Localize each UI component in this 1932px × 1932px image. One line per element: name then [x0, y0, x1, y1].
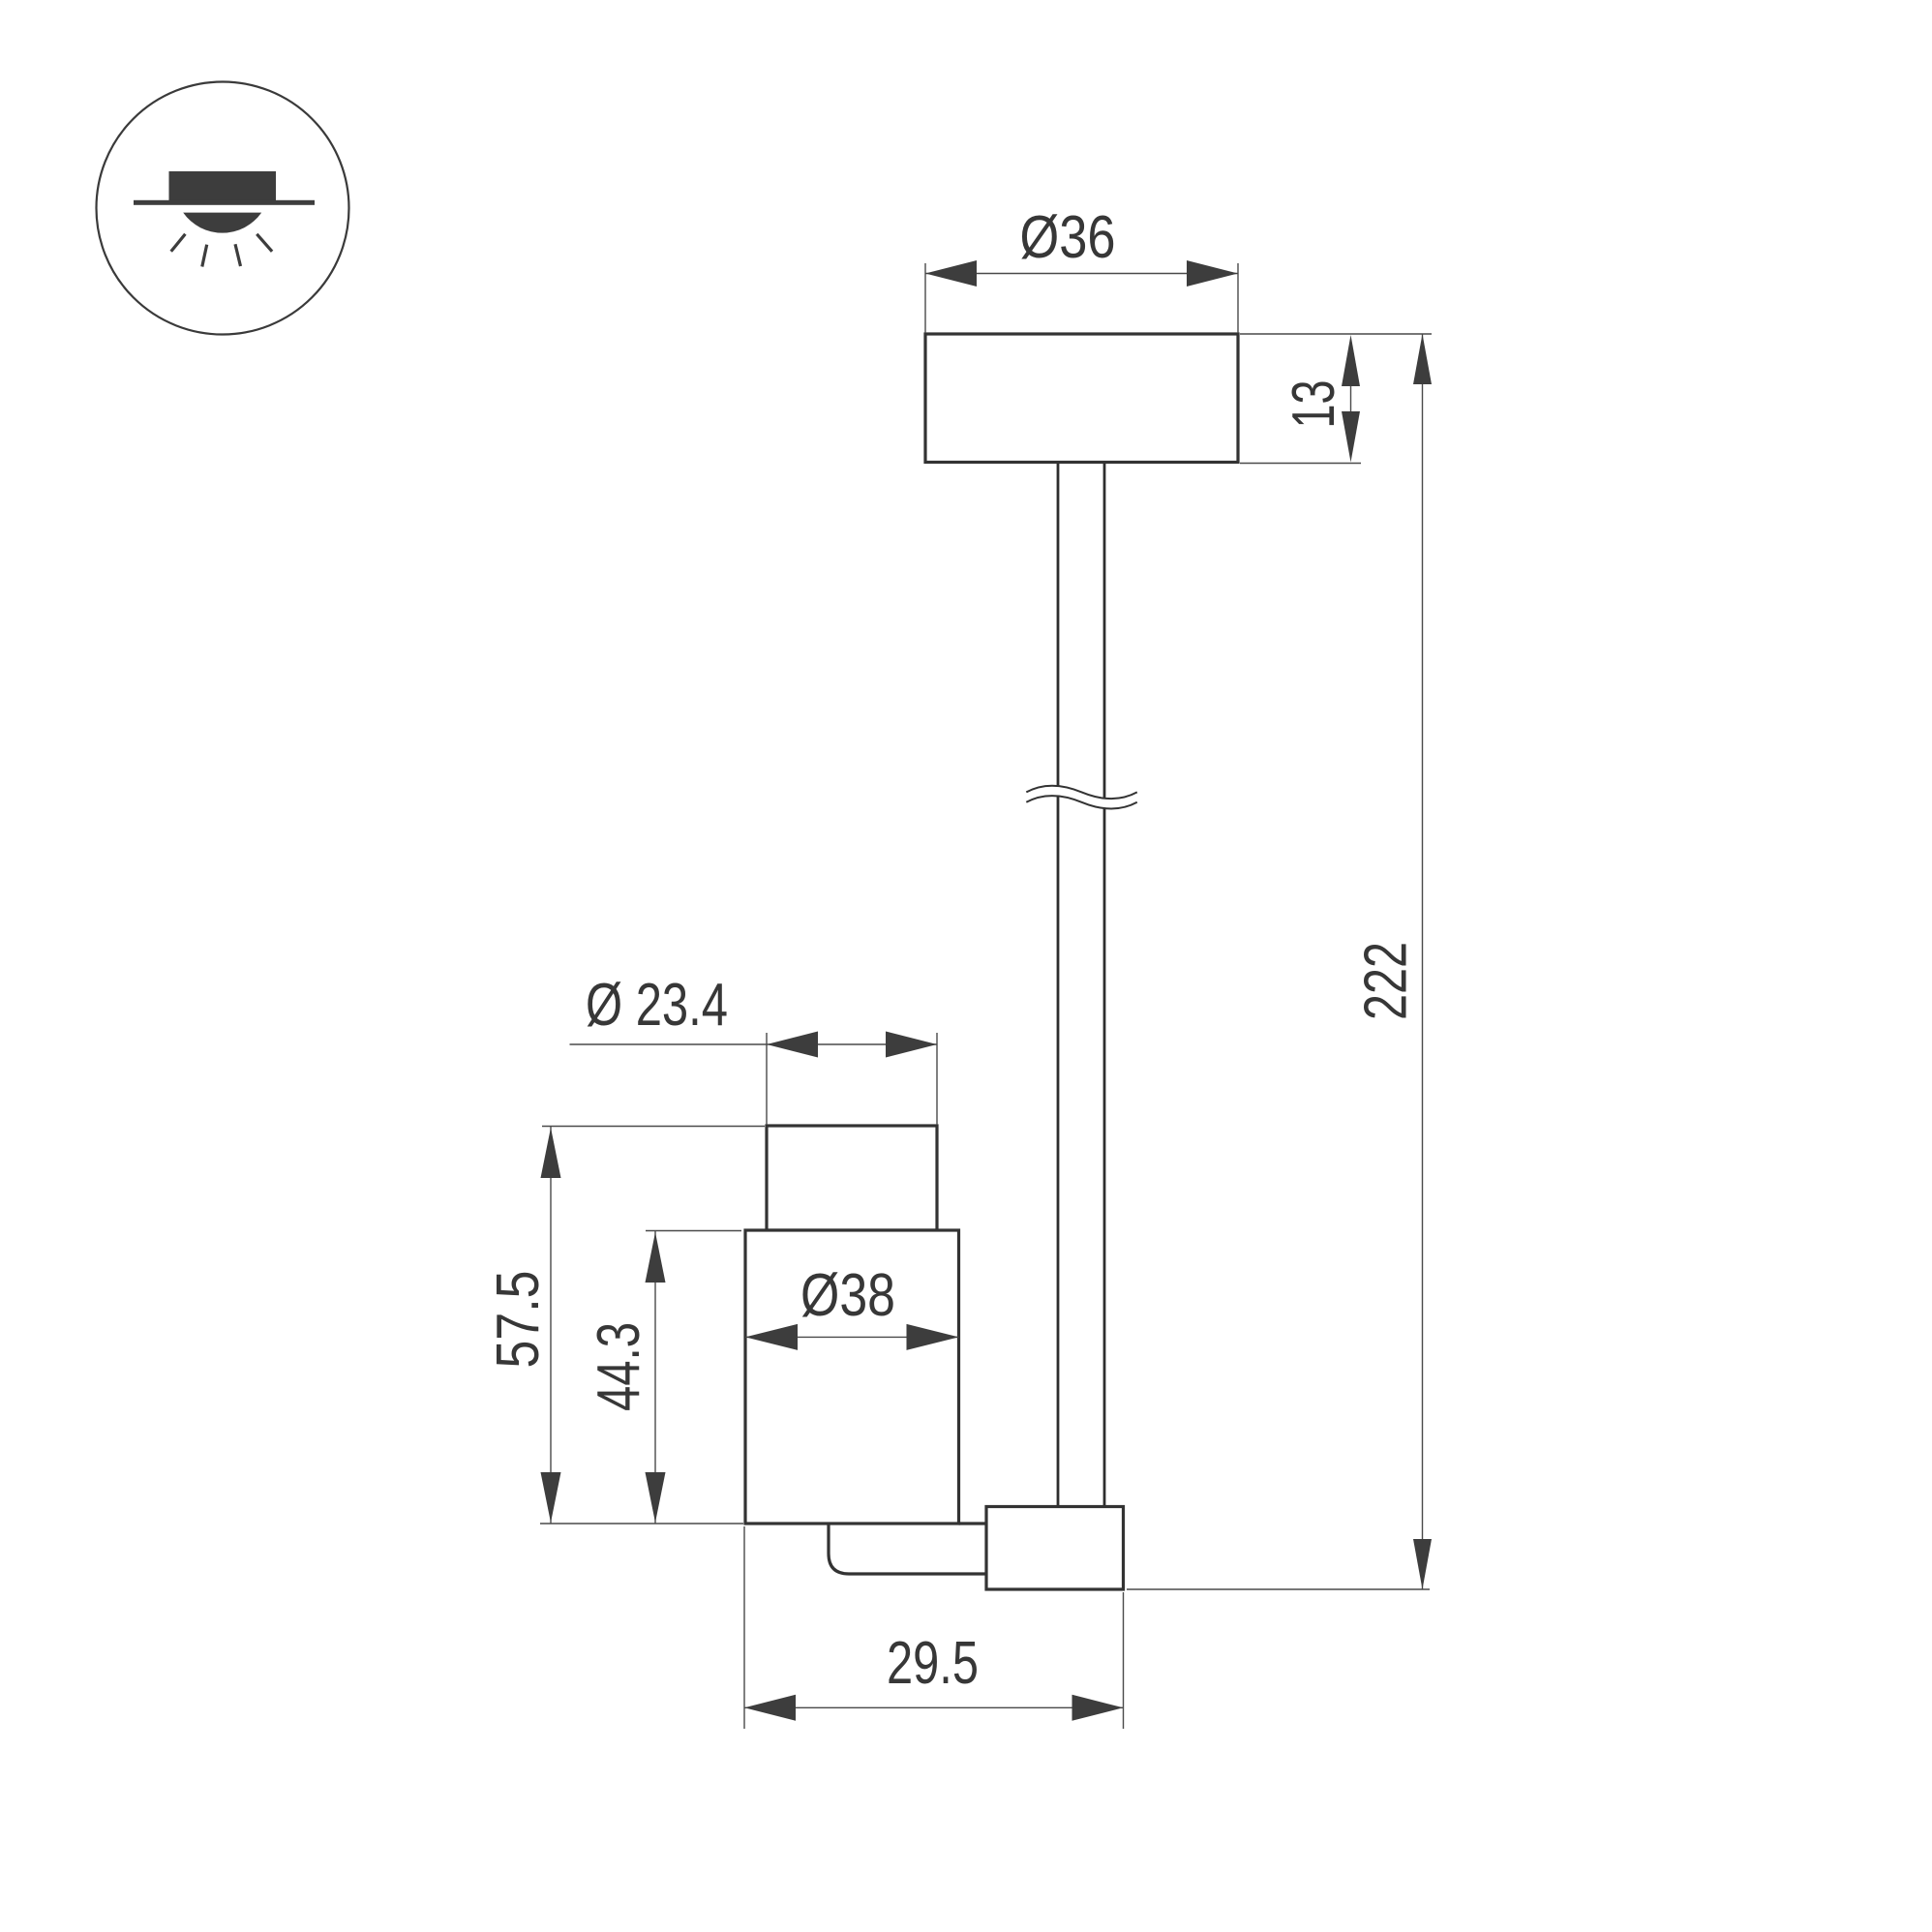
- svg-text:44.3: 44.3: [586, 1322, 652, 1411]
- svg-text:222: 222: [1353, 942, 1420, 1020]
- svg-text:57.5: 57.5: [485, 1271, 552, 1369]
- svg-text:Ø38: Ø38: [800, 1262, 895, 1329]
- svg-text:Ø36: Ø36: [1020, 204, 1116, 271]
- svg-text:29.5: 29.5: [887, 1630, 979, 1697]
- svg-text:Ø 23.4: Ø 23.4: [586, 972, 728, 1039]
- svg-text:13: 13: [1281, 380, 1347, 429]
